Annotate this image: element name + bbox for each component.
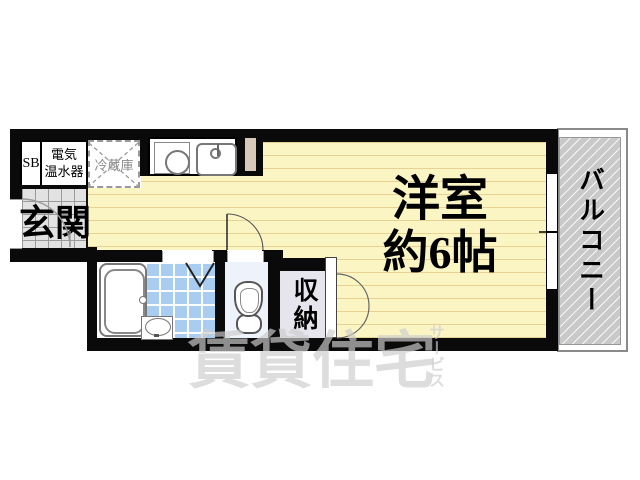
stove-burner-cell (154, 142, 190, 174)
kitchen-counter (148, 137, 237, 176)
main-room-label: 洋室 約6帖 (350, 173, 530, 278)
wall-entrance-bottom (10, 247, 97, 262)
watermark-text: 賃貸住宅 (188, 331, 436, 393)
wall-right-upper (546, 129, 558, 173)
window-divider (547, 231, 557, 233)
electric-water-heater: 電気 温水器 (40, 140, 88, 187)
wall-bath-left (87, 250, 97, 351)
wall-closet-top (280, 258, 326, 271)
shoe-box-label: SB (22, 156, 39, 172)
watermark-subtext: サービス (422, 324, 446, 404)
water-heater-label-line1: 電気 (51, 147, 77, 163)
balcony-window (546, 173, 558, 290)
closet-door-panel (325, 257, 337, 338)
wash-basin (141, 316, 173, 340)
main-room-size: 約6帖 (350, 227, 530, 279)
kitchen-faucet-icon (210, 148, 221, 159)
balcony-label: バルコニー (572, 166, 609, 316)
toilet-seat (240, 288, 259, 313)
floor-plan: バルコニー SB 電気 温水器 冷蔵庫 (0, 0, 640, 480)
pillar (245, 138, 256, 171)
refrigerator-space: 冷蔵庫 (88, 140, 140, 188)
toilet-door-opening (227, 251, 264, 262)
balcony: バルコニー (559, 137, 621, 345)
main-room-name: 洋室 (350, 173, 530, 227)
wall-right-lower (546, 290, 558, 351)
water-heater-label-line2: 温水器 (44, 164, 83, 180)
bathtub-drain-icon (139, 296, 147, 304)
bathtub (99, 263, 147, 337)
toilet (234, 281, 263, 317)
shoe-box: SB (20, 140, 42, 187)
wall-closet-left (268, 250, 280, 338)
boxes-underline (20, 185, 88, 189)
refrigerator-label: 冷蔵庫 (93, 155, 134, 174)
stove-burner-icon (165, 150, 190, 175)
entrance-label: 玄関 (22, 198, 88, 242)
wash-basin-faucet-icon (154, 334, 159, 337)
wall-bath-top-a (97, 250, 162, 262)
bathroom-door-opening (162, 251, 214, 262)
